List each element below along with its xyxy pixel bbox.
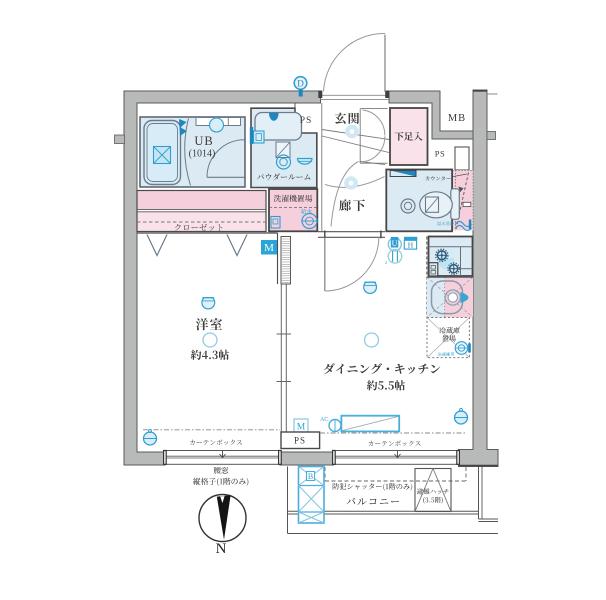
svg-text:AC: AC [320,417,328,423]
svg-text:H: H [408,241,414,250]
svg-text:PS: PS [435,149,445,159]
svg-text:MB: MB [448,113,466,124]
svg-text:N: N [216,541,227,557]
svg-text:PS: PS [300,116,313,126]
svg-text:M: M [297,423,306,433]
svg-text:2: 2 [385,260,387,265]
svg-text:M: M [264,242,274,254]
svg-text:UB: UB [194,134,213,148]
svg-text:D: D [297,79,304,89]
svg-text:(1014): (1014) [189,149,216,160]
svg-text:U: U [392,239,398,248]
svg-text:B: B [308,472,313,481]
svg-text:PS: PS [294,436,306,446]
